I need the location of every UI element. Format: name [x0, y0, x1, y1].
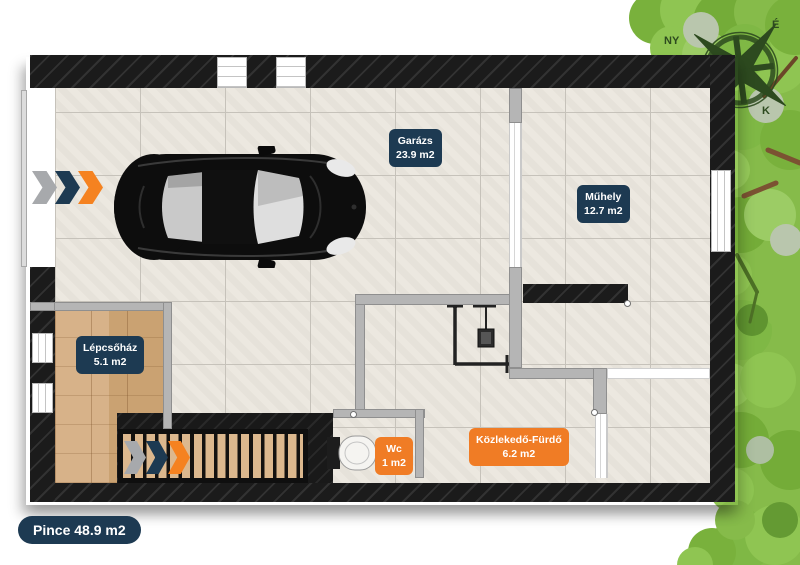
- room-label-garazs: Garázs 23.9 m2: [389, 129, 442, 167]
- wall-garage-bath-vertical: [355, 294, 365, 418]
- room-area: 5.1 m2: [83, 355, 137, 369]
- room-name: Lépcsőház: [83, 341, 137, 355]
- opening-workshop-bath: [607, 368, 710, 379]
- floor-plan-page: É NY K: [0, 0, 800, 565]
- window-right: [711, 170, 731, 252]
- wall-garage-workshop-bottom: [509, 267, 522, 368]
- room-label-kozlekedo-furdo: Közlekedő-Fürdő 6.2 m2: [469, 428, 569, 466]
- door-opening-bath: [595, 414, 608, 478]
- opening-garage-workshop: [509, 123, 522, 267]
- basement-area-badge: Pince 48.9 m2: [18, 516, 141, 544]
- compass-west-label: NY: [664, 35, 680, 47]
- room-name: Garázs: [396, 134, 435, 148]
- window-left-2: [32, 383, 53, 413]
- window-left-1: [32, 333, 53, 363]
- room-area: 1 m2: [382, 456, 406, 470]
- wall-exterior-right: [710, 55, 735, 502]
- shower-fixture-icon: [443, 300, 515, 374]
- room-area: 23.9 m2: [396, 148, 435, 162]
- room-area: 12.7 m2: [584, 204, 623, 218]
- compass-east-label: K: [762, 105, 770, 117]
- wall-wc-top: [333, 409, 425, 418]
- window-top-1: [217, 57, 247, 88]
- room-name: Wc: [382, 442, 406, 456]
- room-label-wc: Wc 1 m2: [375, 437, 413, 475]
- wall-bath-door-jamb: [593, 368, 607, 414]
- wall-garage-workshop-top: [509, 88, 522, 123]
- wall-junction-left: [30, 302, 55, 311]
- wall-wc-right: [415, 409, 424, 478]
- room-label-muhely: Műhely 12.7 m2: [577, 185, 630, 223]
- room-name: Műhely: [584, 190, 623, 204]
- car-top-view: [108, 146, 372, 268]
- compass-north-label: É: [772, 18, 779, 31]
- wall-workshop-stub: [523, 284, 628, 303]
- door-hinge-workshop: [624, 300, 631, 307]
- garage-door: [21, 90, 27, 267]
- wall-garage-bath-horizontal: [355, 294, 522, 305]
- room-area: 6.2 m2: [476, 447, 562, 461]
- staircase: [118, 429, 308, 483]
- door-hinge-wc: [350, 411, 357, 418]
- room-name: Közlekedő-Fürdő: [476, 433, 562, 447]
- toilet-icon: [327, 434, 380, 472]
- wall-exterior-bottom: [30, 483, 735, 502]
- window-top-2: [276, 57, 306, 88]
- wall-exterior-top: [30, 55, 735, 88]
- door-hinge-bath: [591, 409, 598, 416]
- room-label-lepcsohaz: Lépcsőház 5.1 m2: [76, 336, 144, 374]
- wall-staircase-right: [163, 302, 172, 429]
